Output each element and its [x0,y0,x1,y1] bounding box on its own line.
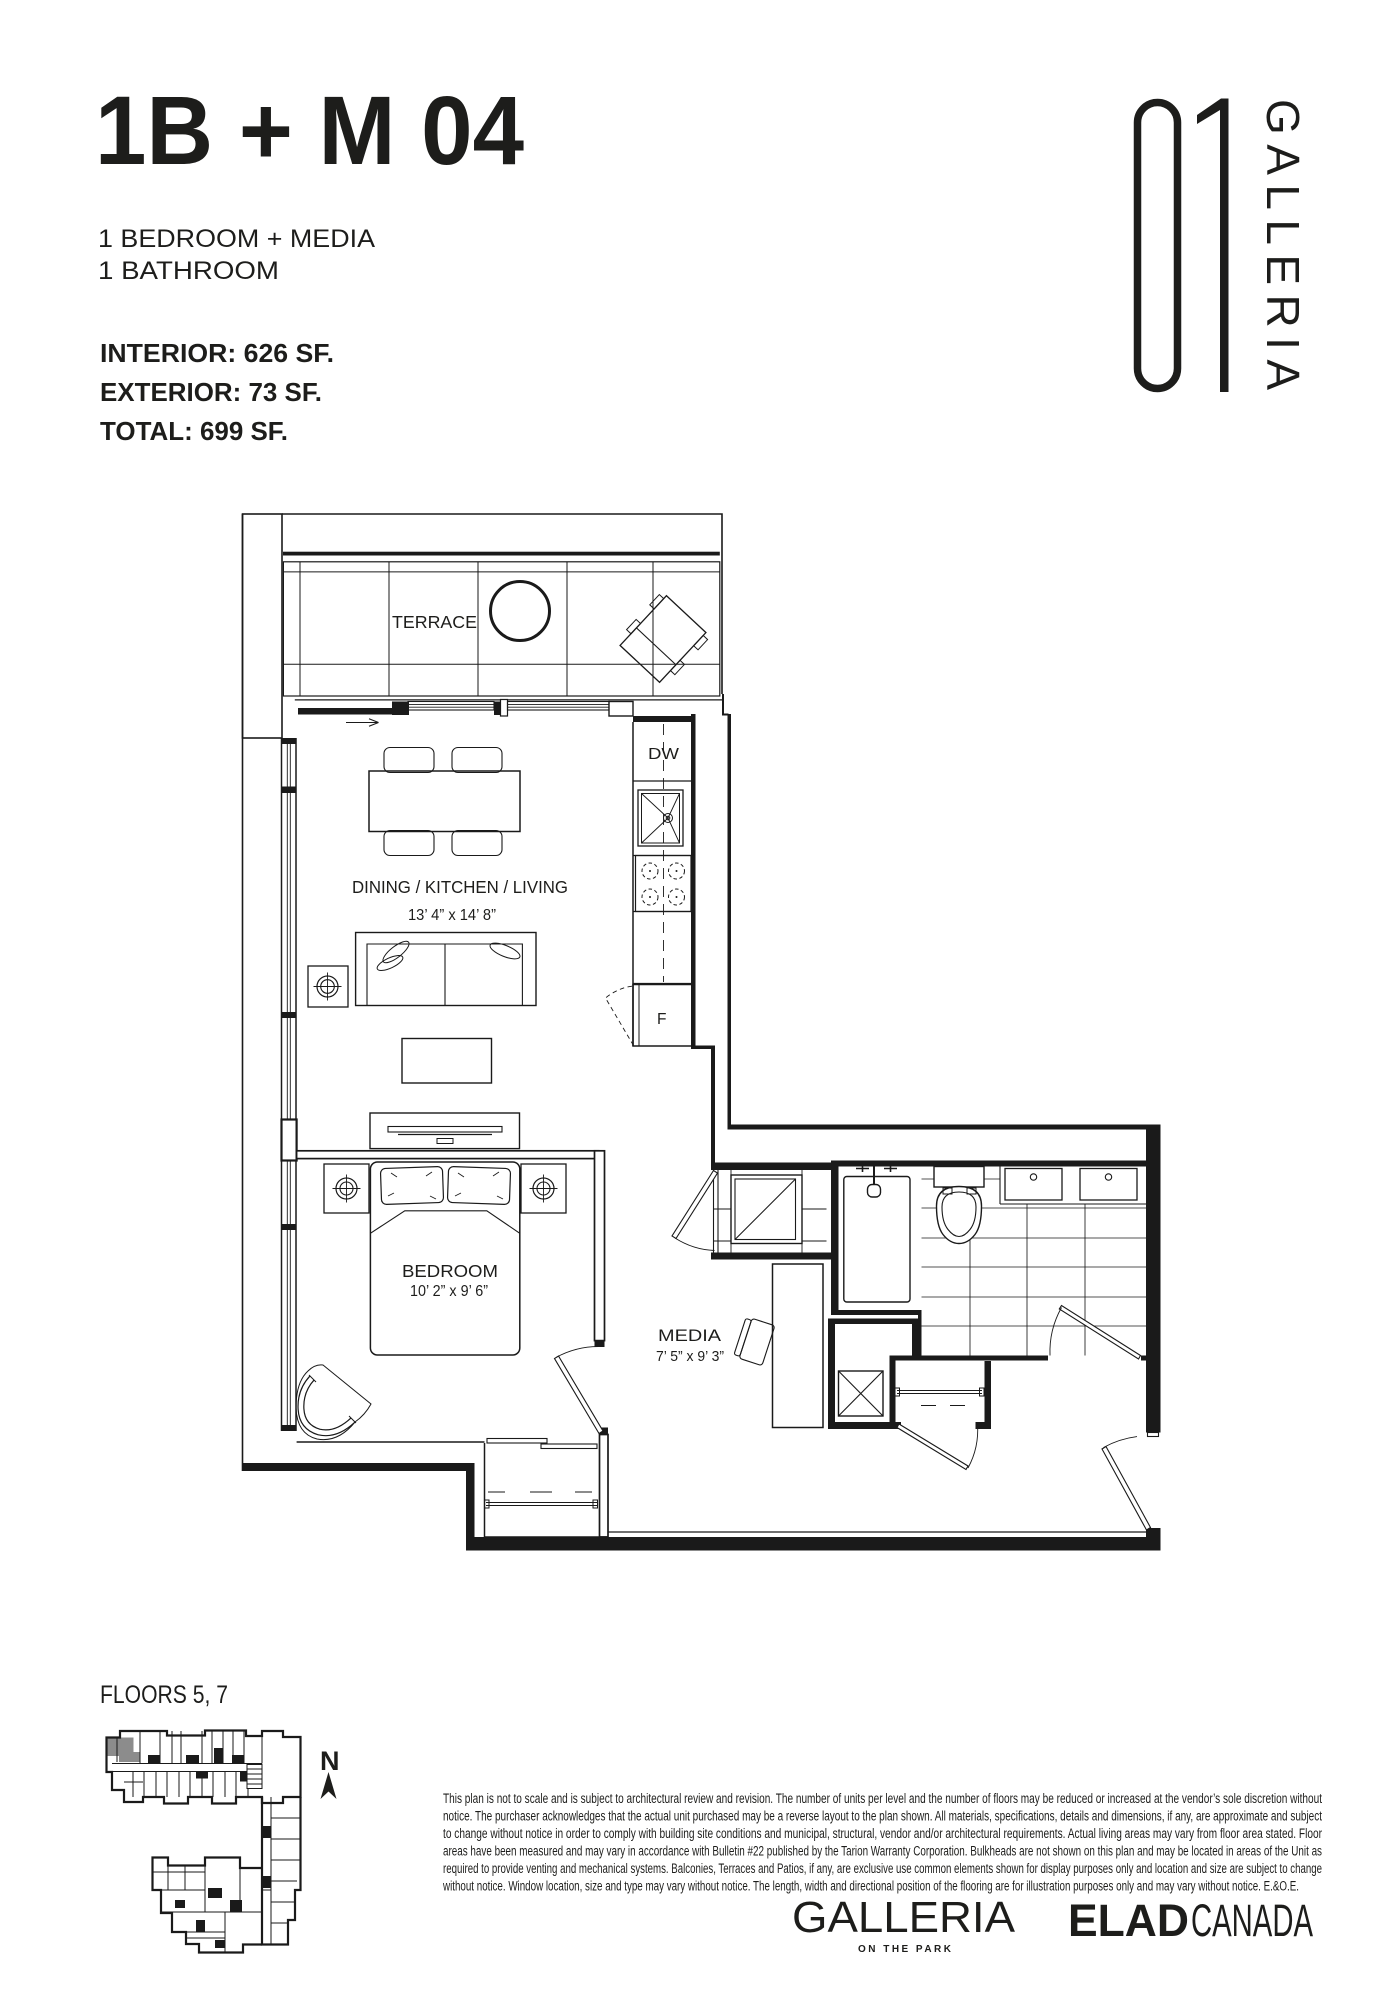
svg-text:EXTERIOR: 73 SF.: EXTERIOR: 73 SF. [100,377,322,407]
svg-text:7’ 5” x 9’ 3”: 7’ 5” x 9’ 3” [656,1349,724,1365]
svg-text:required to provide venting an: required to provide venting and mechanic… [443,1861,1322,1876]
svg-text:CANADA: CANADA [1191,1895,1313,1946]
svg-text:ELAD: ELAD [1068,1895,1189,1946]
svg-text:10’ 2” x 9’ 6”: 10’ 2” x 9’ 6” [410,1283,488,1300]
svg-text:notice. The purchaser acknowle: notice. The purchaser acknowledges that … [443,1809,1322,1824]
svg-text:FLOORS 5, 7: FLOORS 5, 7 [100,1681,228,1709]
svg-text:ON THE PARK: ON THE PARK [858,1944,952,1955]
svg-text:INTERIOR: 626 SF.: INTERIOR: 626 SF. [100,338,334,368]
svg-text:TERRACE: TERRACE [392,612,477,632]
svg-text:DINING / KITCHEN / LIVING: DINING / KITCHEN / LIVING [352,877,568,897]
svg-text:13’ 4” x 14’ 8”: 13’ 4” x 14’ 8” [408,907,496,924]
svg-text:This plan is not to scale and: This plan is not to scale and is subject… [443,1791,1322,1806]
svg-text:MEDIA: MEDIA [658,1326,722,1345]
svg-text:TOTAL: 699 SF.: TOTAL: 699 SF. [100,416,288,446]
svg-text:to change without notice in or: to change without notice in order to com… [443,1826,1322,1841]
svg-text:1 BEDROOM + MEDIA: 1 BEDROOM + MEDIA [98,225,375,253]
svg-text:areas have been measured and m: areas have been measured and may vary in… [443,1844,1322,1859]
svg-text:F: F [657,1011,666,1028]
svg-text:DW: DW [648,746,679,763]
svg-text:1B + M 04: 1B + M 04 [95,76,524,185]
svg-text:GALLERIA: GALLERIA [792,1893,1016,1942]
svg-text:N: N [320,1746,340,1776]
svg-text:1 BATHROOM: 1 BATHROOM [98,257,279,285]
svg-text:without notice. Window locatio: without notice. Window location, size an… [442,1879,1299,1894]
svg-text:BEDROOM: BEDROOM [402,1261,498,1281]
